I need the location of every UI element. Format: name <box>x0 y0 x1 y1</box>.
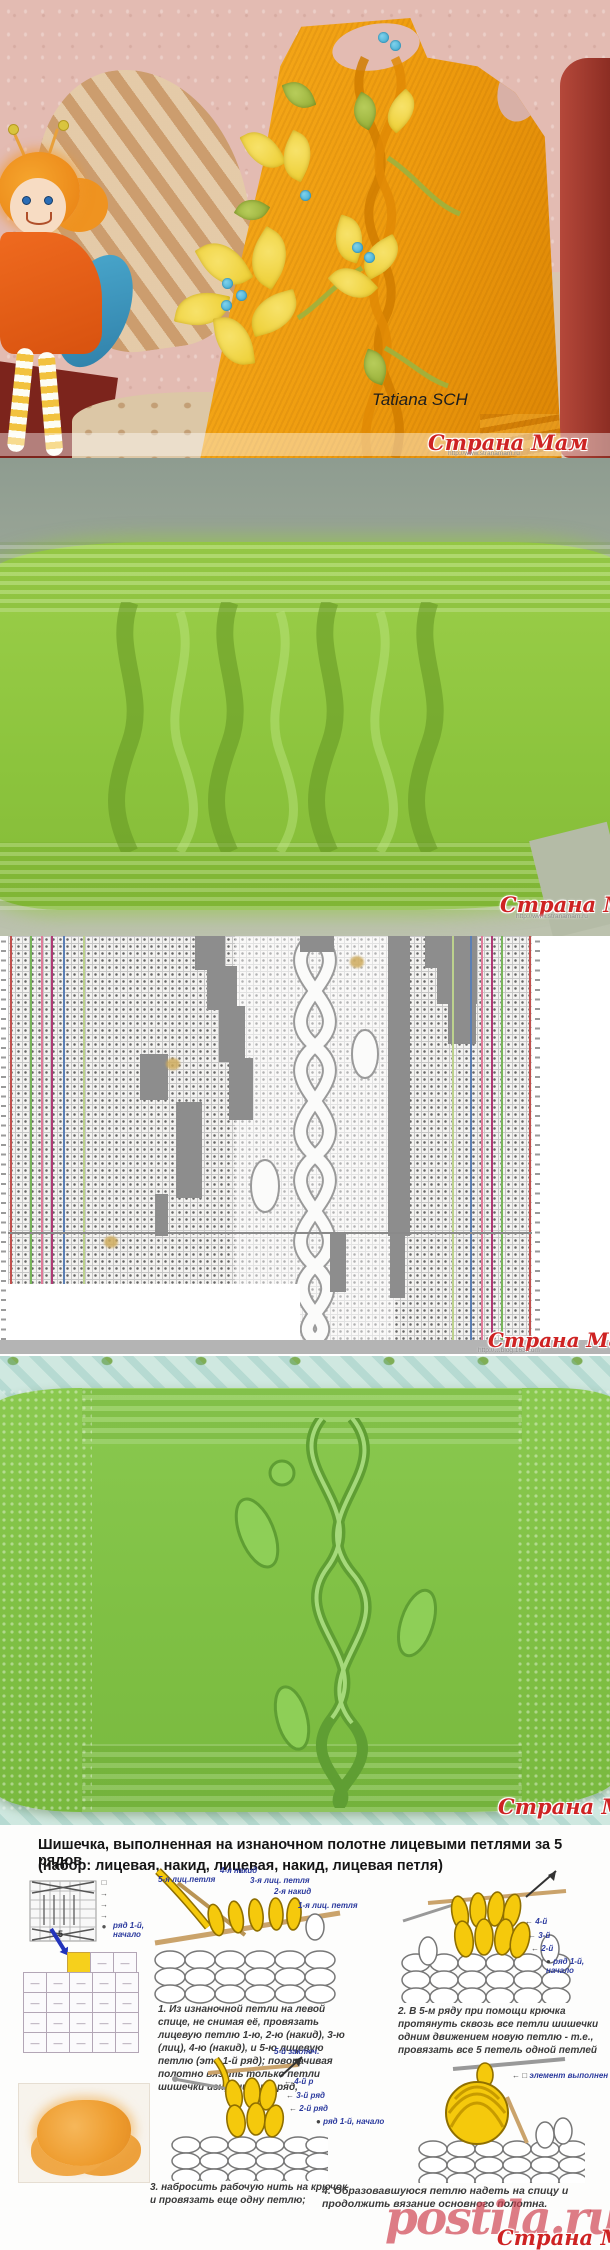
watermark-url: http://www.stranamam.ru <box>516 913 588 920</box>
square-icon: □ <box>100 1877 108 1888</box>
step1-label: 4-я накид <box>220 1866 257 1875</box>
berry <box>364 252 375 263</box>
step3-illustration <box>168 2053 328 2181</box>
step2-row-label: ← 4-й <box>525 1917 547 1926</box>
watermark-source-url: http://…blog.163.com <box>478 1347 540 1354</box>
photo-credit: Tatiana SCH <box>372 390 468 410</box>
doll-antenna-tip <box>8 124 19 135</box>
step1-label: 3-я лиц. петля <box>250 1876 310 1885</box>
arrow-right-icon: → <box>100 1899 108 1910</box>
knitting-chart: Страна Мам http://…blog.163.com <box>0 936 610 1356</box>
step2-row-label: ← 2-й <box>531 1944 553 1953</box>
doll-antenna-tip <box>58 120 69 131</box>
purl-cell: — <box>113 1952 137 1973</box>
photo-orange-dress: Tatiana SCH Страна Мам http://www.strana… <box>0 0 610 458</box>
doll-face <box>10 178 66 236</box>
photo-green-fuzzy-swatch: Страна Мам http://www.stranamam.ru <box>0 458 610 936</box>
chart-divider-line <box>8 1232 532 1234</box>
bobble-photo <box>18 2083 150 2183</box>
bobble-cell <box>67 1952 91 1973</box>
chart-left-cutout <box>8 1284 300 1342</box>
step1-label: 5-я лиц.петля <box>158 1875 215 1884</box>
dot-icon: ● <box>100 1921 108 1932</box>
step1-illustration <box>150 1865 350 2005</box>
arrow-right-icon: → <box>100 1910 108 1921</box>
step1-label: 2-я накид <box>274 1887 311 1896</box>
row-numbers-right <box>535 936 540 1340</box>
step3-top-label: 5-й заключ. <box>274 2047 319 2056</box>
arrow-left-icon: ← <box>286 2091 294 2100</box>
dot-icon: ● <box>316 2117 321 2126</box>
dot-icon: ● <box>546 1957 551 1966</box>
step3-row-label: ← 4-й р <box>284 2077 313 2086</box>
stitch-grid: — — ————— ————— ————— ————— <box>24 1953 139 2053</box>
step4-done-label: ← □ элемент выполнен <box>512 2071 608 2080</box>
step2-row-start: ● ряд 1-й, начало <box>546 1957 600 1975</box>
step3-row-label: ← 3-й ряд <box>286 2091 325 2100</box>
cable-corridor <box>235 936 395 1340</box>
berry <box>221 300 232 311</box>
step2-row-label: ← 3-й <box>528 1931 550 1940</box>
moss-stitch-band <box>0 1388 92 1812</box>
bobble-yarn <box>37 2100 131 2166</box>
mini-chart-legend: □ → → → ● <box>100 1877 108 1932</box>
cable-texture <box>70 602 530 852</box>
square-icon: □ <box>522 2071 527 2080</box>
berry <box>236 290 247 301</box>
moss-stitch-band <box>516 1388 610 1812</box>
cable-leaf-pattern <box>202 1418 472 1808</box>
step3-row-label: ← 2-й ряд <box>289 2104 328 2113</box>
bobble-symbol <box>166 1058 180 1070</box>
step3-row-start: ● ряд 1-й, начало <box>316 2117 384 2126</box>
arrow-left-icon: ← <box>528 1931 536 1940</box>
arrow-right-icon: → <box>100 1888 108 1899</box>
watermark-brand: Страна Мам <box>497 2225 610 2250</box>
step1-label: 1-я лиц. петля <box>298 1901 358 1910</box>
berry <box>390 40 401 51</box>
knitted-swatch <box>0 542 610 910</box>
purl-cell: — <box>90 1952 114 1973</box>
bobble-symbol <box>104 1236 118 1248</box>
knitting-tutorial-collage: Tatiana SCH Страна Мам http://www.strana… <box>0 0 610 2250</box>
red-chair <box>560 58 610 458</box>
doll-smile <box>26 212 52 225</box>
row-numbers-left <box>1 936 6 1340</box>
berry <box>300 190 311 201</box>
berry <box>222 278 233 289</box>
arrow-left-icon: ← <box>531 1944 539 1953</box>
berry <box>378 32 389 43</box>
arrow-left-icon: ← <box>525 1917 533 1926</box>
watermark-brand: Страна Мам <box>498 1794 610 1819</box>
arrow-left-icon: ← <box>289 2104 297 2113</box>
knitted-swatch <box>0 1388 610 1812</box>
watermark-url: http://www.stranamam.ru <box>448 450 520 457</box>
step2-text: 2. В 5-м ряду при помощи крючка протянут… <box>398 2005 604 2057</box>
arrow-left-icon: ← <box>284 2077 292 2086</box>
doll-eye <box>22 196 31 205</box>
doll-eye <box>44 196 53 205</box>
berry <box>352 242 363 253</box>
bobble-instructions: Шишечка, выполненная на изнаночном полот… <box>0 1825 610 2250</box>
photo-green-cable-swatch: Страна Мам <box>0 1356 610 1825</box>
bobble-symbol <box>350 956 364 968</box>
arrow-left-icon: ← <box>512 2071 520 2080</box>
